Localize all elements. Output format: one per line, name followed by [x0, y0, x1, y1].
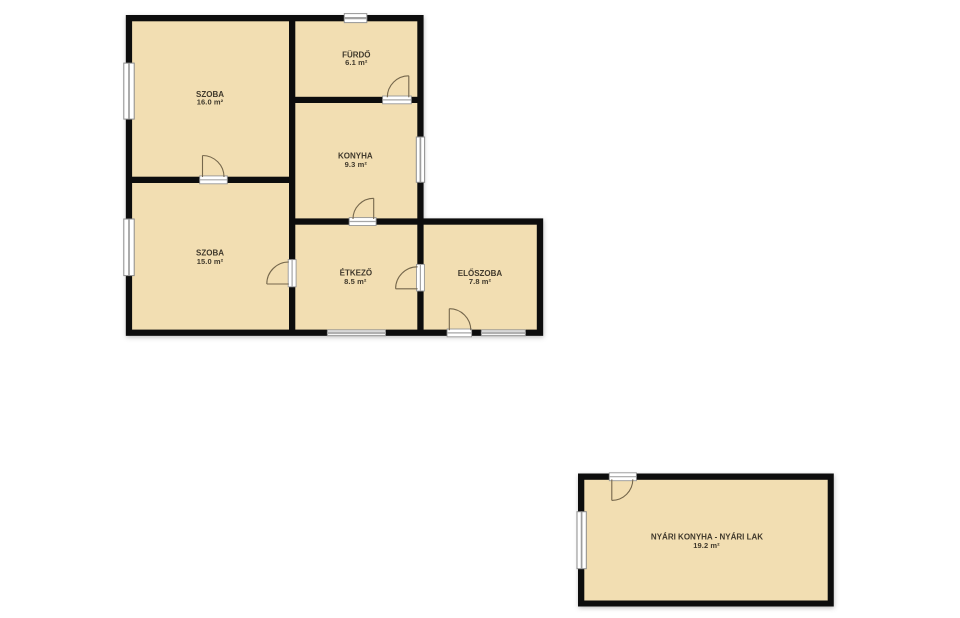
svg-text:19.2 m²: 19.2 m²: [693, 541, 720, 550]
svg-text:6.1 m²: 6.1 m²: [345, 58, 368, 67]
svg-text:8.5 m²: 8.5 m²: [344, 277, 367, 286]
svg-text:16.0 m²: 16.0 m²: [197, 98, 224, 107]
svg-text:9.3 m²: 9.3 m²: [345, 160, 368, 169]
svg-text:7.8 m²: 7.8 m²: [469, 277, 492, 286]
svg-text:15.0 m²: 15.0 m²: [197, 257, 224, 266]
